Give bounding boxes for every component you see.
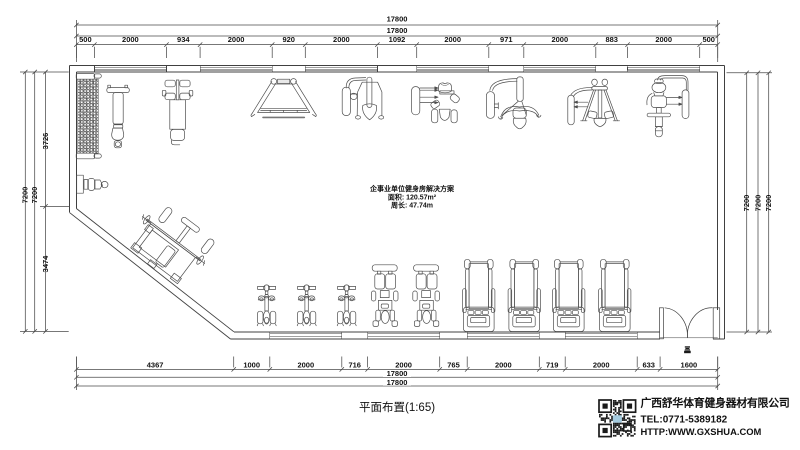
svg-text:7200: 7200 bbox=[21, 187, 30, 204]
svg-text:企事业单位健身房解决方案: 企事业单位健身房解决方案 bbox=[369, 184, 455, 193]
svg-text:广西舒华体育健身器材有限公司: 广西舒华体育健身器材有限公司 bbox=[641, 396, 790, 410]
svg-text:1000: 1000 bbox=[243, 361, 260, 370]
svg-text:883: 883 bbox=[605, 35, 618, 44]
svg-text:3474: 3474 bbox=[41, 255, 50, 273]
svg-text:633: 633 bbox=[642, 361, 655, 370]
svg-text:2000: 2000 bbox=[122, 35, 139, 44]
svg-text:HTTP:WWW.GXSHUA.COM: HTTP:WWW.GXSHUA.COM bbox=[641, 426, 762, 437]
svg-text:17800: 17800 bbox=[387, 369, 408, 378]
svg-text:2000: 2000 bbox=[297, 361, 314, 370]
svg-text:1600: 1600 bbox=[681, 361, 698, 370]
svg-text:765: 765 bbox=[447, 361, 460, 370]
svg-text:7200: 7200 bbox=[764, 195, 773, 212]
svg-text:TEL:0771-5389182: TEL:0771-5389182 bbox=[641, 415, 728, 426]
svg-text:1092: 1092 bbox=[389, 35, 406, 44]
svg-text:17800: 17800 bbox=[387, 378, 408, 387]
svg-text:17800: 17800 bbox=[387, 15, 408, 24]
svg-text:971: 971 bbox=[500, 35, 513, 44]
svg-text:2000: 2000 bbox=[444, 35, 461, 44]
svg-text:3726: 3726 bbox=[41, 133, 50, 150]
svg-text:500: 500 bbox=[79, 35, 92, 44]
svg-text:7200: 7200 bbox=[754, 195, 763, 212]
svg-text:920: 920 bbox=[282, 35, 295, 44]
svg-text:2000: 2000 bbox=[551, 35, 568, 44]
svg-text:2000: 2000 bbox=[495, 361, 512, 370]
svg-text:2000: 2000 bbox=[333, 35, 350, 44]
svg-text:17800: 17800 bbox=[387, 26, 408, 35]
svg-text:500: 500 bbox=[702, 35, 715, 44]
svg-text:716: 716 bbox=[348, 361, 361, 370]
svg-text:4367: 4367 bbox=[147, 361, 164, 370]
svg-text:7200: 7200 bbox=[30, 187, 39, 204]
svg-text:平面布置(1:65): 平面布置(1:65) bbox=[359, 401, 435, 414]
svg-text:719: 719 bbox=[546, 361, 559, 370]
svg-text:2000: 2000 bbox=[228, 35, 245, 44]
svg-text:934: 934 bbox=[177, 35, 190, 44]
svg-text:2000: 2000 bbox=[593, 361, 610, 370]
svg-text:面积: 120.57m²: 面积: 120.57m² bbox=[388, 193, 437, 202]
svg-text:周长: 47.74m: 周长: 47.74m bbox=[391, 201, 433, 210]
svg-text:2000: 2000 bbox=[655, 35, 672, 44]
svg-text:7200: 7200 bbox=[742, 195, 751, 212]
